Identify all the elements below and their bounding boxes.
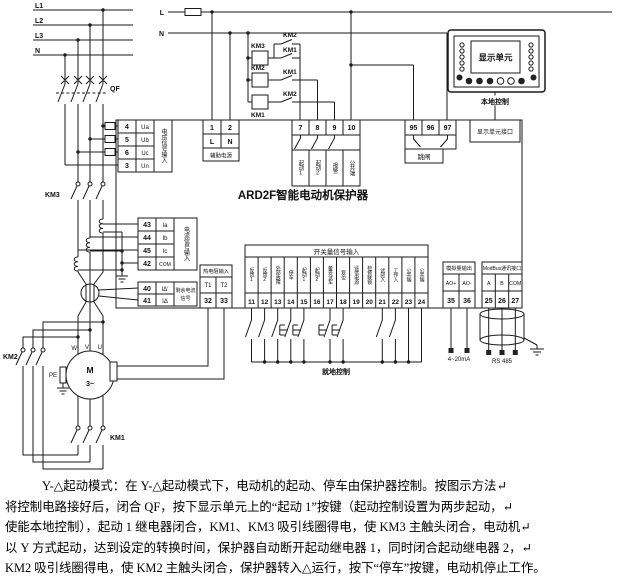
aux-power-label: 辅助电源 — [210, 152, 233, 160]
contact-label-km2: KM2 — [283, 32, 297, 39]
bus-label-l2: L2 — [35, 18, 43, 25]
terminal-36: 36 — [463, 298, 471, 305]
terminal-32: 32 — [204, 298, 212, 305]
motor-terminal-u: U — [98, 345, 102, 351]
comm-note: RS 485 — [492, 359, 513, 365]
km2-coil — [252, 73, 268, 87]
fuse-symbol — [185, 9, 201, 16]
di-label-4: 停车 — [288, 270, 294, 282]
terminal-21: 21 — [379, 299, 387, 306]
di-label-10: 检修联锁 — [366, 265, 372, 286]
terminal-id2: IΔ — [162, 299, 168, 305]
current-input-label: 电流信号输入 — [183, 226, 190, 262]
terminal-ub: Ub — [141, 138, 149, 144]
description-line: 以 Y 方式起动，达到设定的转换时间，保护器自动断开起动继电器 1，同时闭合起动… — [0, 538, 620, 559]
di-label-2: 反馈2 — [262, 267, 268, 283]
terminal-1: 1 — [210, 125, 214, 132]
coil-label-km1: KM1 — [251, 112, 265, 119]
motor-terminal-w: W — [71, 346, 77, 352]
terminal-25: 25 — [485, 298, 493, 305]
terminal-ic: Ic — [163, 249, 168, 255]
description-text: Y-△起动模式：在 Y-△起动模式下，电动机的起动、停车由保护器控制。按图示方法… — [0, 471, 620, 579]
terminal-12: 12 — [261, 299, 269, 306]
control-n-label: N — [159, 31, 164, 38]
terminal-4: 4 — [125, 124, 129, 131]
device-title: ARD2F智能电动机保护器 — [238, 188, 369, 202]
contact-label-km1: KM1 — [283, 47, 297, 54]
km2-label: KM2 — [3, 354, 18, 361]
di-header: 开关量信号输入 — [314, 247, 360, 256]
breaker-cross-marks — [61, 76, 107, 84]
terminal-33: 33 — [220, 298, 228, 305]
wiring-diagram: L1 L2 L3 N L N QF KM3 KM2 KM1 KM3 KM2 KM… — [0, 0, 620, 472]
terminal-44: 44 — [143, 235, 151, 242]
terminal-t1: T1 — [204, 283, 212, 289]
terminal-40: 40 — [143, 286, 151, 293]
terminal-uc: Uc — [141, 151, 148, 157]
terminal-ib: Ib — [162, 236, 168, 242]
terminal-6: 6 — [125, 150, 129, 157]
terminal-7: 7 — [299, 125, 303, 132]
terminal-a: A — [487, 281, 491, 287]
di-label-12: 工作入 — [392, 268, 398, 283]
coil-label-km3: KM3 — [251, 43, 265, 50]
terminal-13: 13 — [274, 299, 282, 306]
di-label-5: 起动1 — [301, 267, 307, 282]
description-line: Y-△起动模式：在 Y-△起动模式下，电动机的起动、停车由保护器控制。按图示方法… — [0, 476, 620, 497]
terminal-97: 97 — [444, 125, 452, 132]
km3-coil — [252, 51, 268, 65]
motor-symbol — [66, 351, 114, 399]
trip-label: 跳闸 — [418, 152, 431, 161]
terminal-9: 9 — [333, 125, 337, 132]
di-caption: 就地控制 — [322, 367, 350, 376]
terminal-10: 10 — [348, 125, 356, 132]
terminal-ia: Ia — [162, 223, 168, 229]
di-label-6: 起动2 — [314, 267, 320, 282]
ct-coils — [74, 219, 103, 271]
contact-label-km2b: KM2 — [283, 91, 297, 98]
terminal-35: 35 — [447, 298, 455, 305]
km3-label: KM3 — [45, 192, 60, 199]
terminal-96: 96 — [427, 125, 435, 132]
motor-phase-label: 3~ — [86, 381, 94, 388]
wiring-diagram-page: L1 L2 L3 N L N QF KM3 KM2 KM1 KM3 KM2 KM… — [0, 0, 620, 580]
description-line: 使能本地控制），起动 1 继电器闭合，KM1、KM3 吸引线圈得电，使 KM3 … — [0, 517, 620, 538]
display-port-label: 显示单元接口 — [477, 128, 513, 136]
terminal-19: 19 — [352, 299, 360, 306]
terminal-42: 42 — [143, 261, 151, 268]
terminal-com: COM — [159, 262, 171, 268]
di-label-1: 反馈1 — [249, 267, 255, 283]
fuse-symbol — [105, 136, 115, 143]
terminal-22: 22 — [392, 299, 400, 306]
terminal-95: 95 — [410, 125, 418, 132]
terminal-ao-plus: AO+ — [446, 281, 457, 287]
pe-terminal — [60, 367, 66, 383]
bus-label-n: N — [35, 48, 40, 55]
control-l-label: L — [160, 10, 165, 17]
temp-input-header: 热电阻输入 — [203, 267, 229, 275]
terminal-11: 11 — [248, 299, 255, 306]
terminal-2: 2 — [228, 125, 232, 132]
comm-header: ModBus通讯接口 — [483, 265, 521, 272]
terminal-3: 3 — [125, 163, 129, 170]
description-line: KM2 吸引线圈得电，使 KM2 主触头闭合，保护器转入△运行，按下“停车”按键… — [0, 558, 620, 579]
terminal-18: 18 — [339, 299, 347, 306]
terminal-1-name: L — [210, 139, 215, 146]
terminal-15: 15 — [300, 299, 308, 306]
di-label-3: 外部故障 — [275, 265, 281, 286]
km1-coil — [252, 95, 268, 109]
terminal-24: 24 — [418, 299, 426, 306]
km1-label: KM1 — [110, 435, 125, 442]
motor-sensor-terminal — [110, 362, 117, 381]
terminal-id1: IΔ′ — [162, 287, 170, 293]
terminal-45: 45 — [143, 248, 151, 255]
terminal-16: 16 — [313, 299, 321, 306]
di-label-13: 公共端 — [406, 268, 412, 284]
terminal-8: 8 — [316, 125, 320, 132]
di-label-9: 遥信电源 — [353, 265, 359, 286]
residual-label-line1: 剩余电流 — [175, 287, 195, 294]
motor-m-label: M — [86, 365, 93, 375]
di-label-14: 公共端 — [419, 268, 425, 284]
terminal-26: 26 — [498, 298, 506, 305]
terminal-20: 20 — [366, 299, 374, 306]
breaker-label: QF — [110, 86, 120, 93]
terminal-17: 17 — [326, 299, 334, 306]
terminal-27: 27 — [511, 298, 519, 305]
di-label-8: 复位 — [340, 270, 346, 281]
residual-label-line2: 信号 — [180, 295, 190, 302]
coil-label-km2: KM2 — [251, 65, 265, 72]
ao-header: 模拟量输出 — [446, 264, 472, 272]
terminal-2-name: N — [227, 139, 232, 146]
motor-terminal-v: V — [85, 345, 89, 351]
terminal-un: Un — [141, 164, 149, 170]
fuse-symbol — [105, 149, 115, 156]
contact-label-km1b: KM1 — [283, 69, 297, 76]
ao-note: 4~20mA — [448, 357, 471, 363]
terminal-t2: T2 — [220, 283, 228, 289]
display-screen-label: 显示单元 — [478, 53, 513, 63]
bus-label-l3: L3 — [35, 33, 43, 40]
di-label-7: 备妥试车 — [327, 265, 333, 286]
relay-label-common: 公共端 — [349, 160, 356, 177]
terminal-14: 14 — [287, 299, 295, 306]
description-line: 将控制电路接好后，闭合 QF，按下显示单元上的“起动 1”按键（起动控制设置为两… — [0, 497, 620, 518]
terminal-43: 43 — [143, 222, 151, 229]
terminal-com2: COM — [509, 281, 521, 287]
local-control-caption: 本地控制 — [480, 97, 509, 106]
terminal-41: 41 — [143, 298, 151, 305]
relay-label-alarm: 报警 — [332, 162, 339, 175]
voltage-input-label: 电压信号输入 — [160, 128, 167, 164]
terminal-5: 5 — [125, 137, 129, 144]
relay-label-start2: 起动2 — [315, 160, 322, 176]
relay-label-start1: 起动1 — [298, 160, 305, 176]
fuse-symbol — [105, 123, 115, 130]
terminal-ao-minus: AO- — [462, 281, 471, 287]
motor-pe-label: PE — [49, 373, 57, 379]
bus-label-l1: L1 — [35, 3, 43, 10]
di-label-11: 试验入 — [379, 267, 385, 282]
terminal-b: B — [500, 281, 504, 287]
terminal-23: 23 — [405, 299, 413, 306]
terminal-ua: Ua — [141, 125, 149, 131]
